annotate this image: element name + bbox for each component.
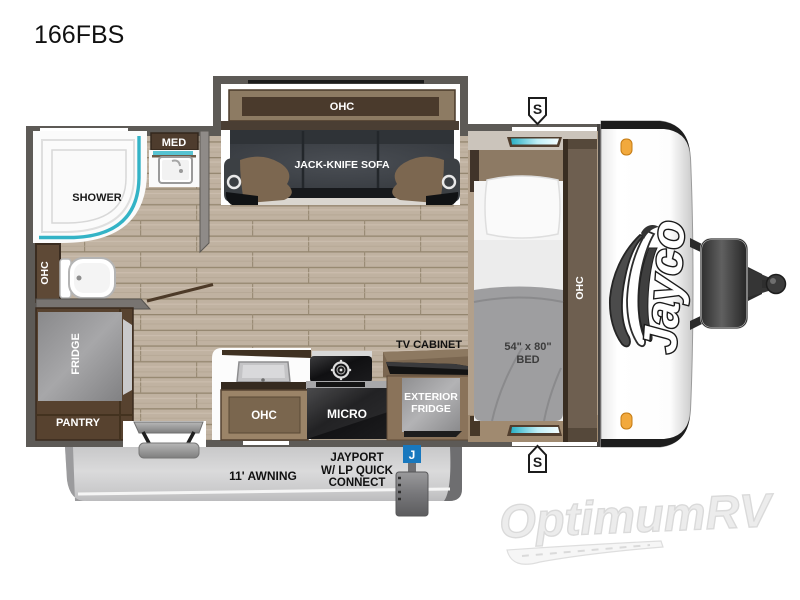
svg-text:BED: BED xyxy=(516,354,539,366)
svg-text:MED: MED xyxy=(162,137,187,149)
svg-text:OHC: OHC xyxy=(251,410,277,422)
svg-text:S: S xyxy=(533,101,542,117)
svg-text:EXTERIOR: EXTERIOR xyxy=(404,391,458,403)
svg-text:166FBS: 166FBS xyxy=(34,21,124,49)
svg-text:CONNECT: CONNECT xyxy=(329,477,386,489)
svg-text:J: J xyxy=(409,448,416,462)
svg-text:Jayco: Jayco xyxy=(632,219,694,356)
svg-text:JAYPORT: JAYPORT xyxy=(330,452,383,464)
svg-text:TV CABINET: TV CABINET xyxy=(396,339,462,351)
svg-text:11' AWNING: 11' AWNING xyxy=(229,469,297,483)
svg-text:PANTRY: PANTRY xyxy=(56,417,101,429)
svg-text:54" x 80": 54" x 80" xyxy=(504,341,551,353)
svg-text:FRIDGE: FRIDGE xyxy=(411,403,451,415)
svg-text:OHC: OHC xyxy=(330,101,355,113)
svg-text:S: S xyxy=(533,454,542,470)
svg-text:JACK-KNIFE SOFA: JACK-KNIFE SOFA xyxy=(294,159,390,171)
svg-text:OHC: OHC xyxy=(574,276,586,300)
svg-text:W/ LP QUICK: W/ LP QUICK xyxy=(321,465,394,477)
svg-text:FRIDGE: FRIDGE xyxy=(70,333,82,375)
svg-text:SHOWER: SHOWER xyxy=(72,192,122,204)
svg-text:MICRO: MICRO xyxy=(327,407,367,421)
svg-text:OHC: OHC xyxy=(39,261,51,285)
